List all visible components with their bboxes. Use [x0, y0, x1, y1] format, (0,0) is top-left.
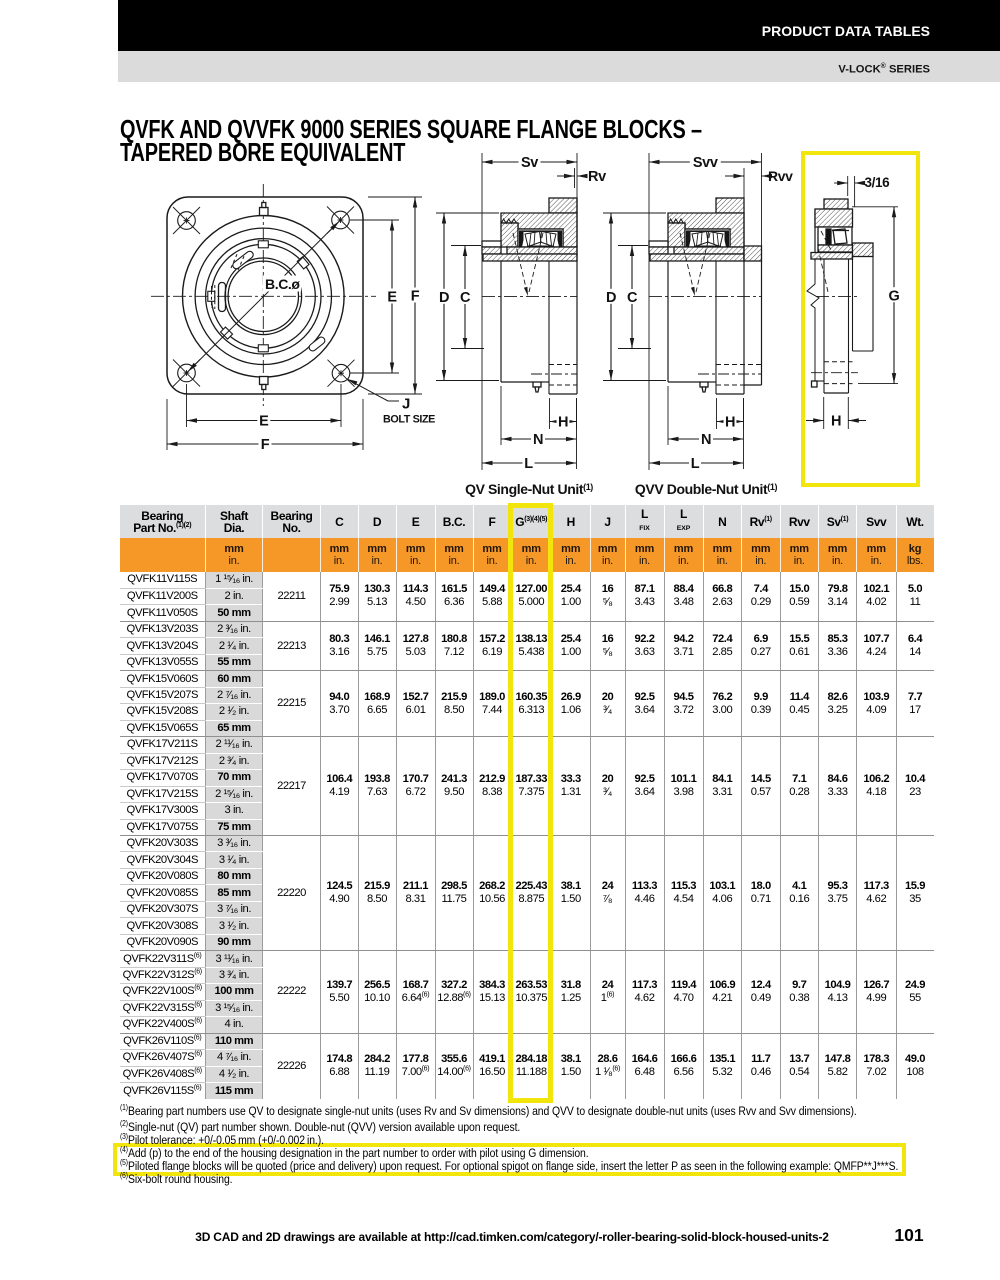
svg-text:Rv: Rv — [588, 169, 606, 185]
svg-text:Svv: Svv — [693, 155, 718, 171]
svg-text:F: F — [411, 289, 420, 305]
svg-text:L: L — [524, 456, 533, 472]
svg-text:C: C — [627, 290, 638, 306]
svg-text:H: H — [558, 415, 568, 431]
svg-text:E: E — [387, 290, 397, 306]
svg-text:F: F — [261, 437, 270, 453]
svg-text:QVV Double-Nut Unit(1): QVV Double-Nut Unit(1) — [635, 481, 778, 497]
svg-text:QV Single-Nut Unit(1): QV Single-Nut Unit(1) — [465, 481, 593, 497]
svg-text:J: J — [402, 395, 410, 412]
svg-text:B.C.ø: B.C.ø — [265, 276, 300, 292]
svg-text:N: N — [533, 432, 543, 448]
svg-text:E: E — [259, 414, 269, 430]
svg-text:Rvv: Rvv — [768, 168, 793, 184]
svg-text:N: N — [701, 432, 711, 448]
svg-text:D: D — [439, 290, 449, 306]
svg-text:Sv: Sv — [521, 155, 538, 171]
svg-text:C: C — [460, 290, 471, 306]
svg-text:H: H — [725, 415, 735, 431]
svg-text:BOLT SIZE: BOLT SIZE — [383, 413, 435, 425]
svg-text:D: D — [606, 290, 616, 306]
svg-text:L: L — [691, 456, 700, 472]
